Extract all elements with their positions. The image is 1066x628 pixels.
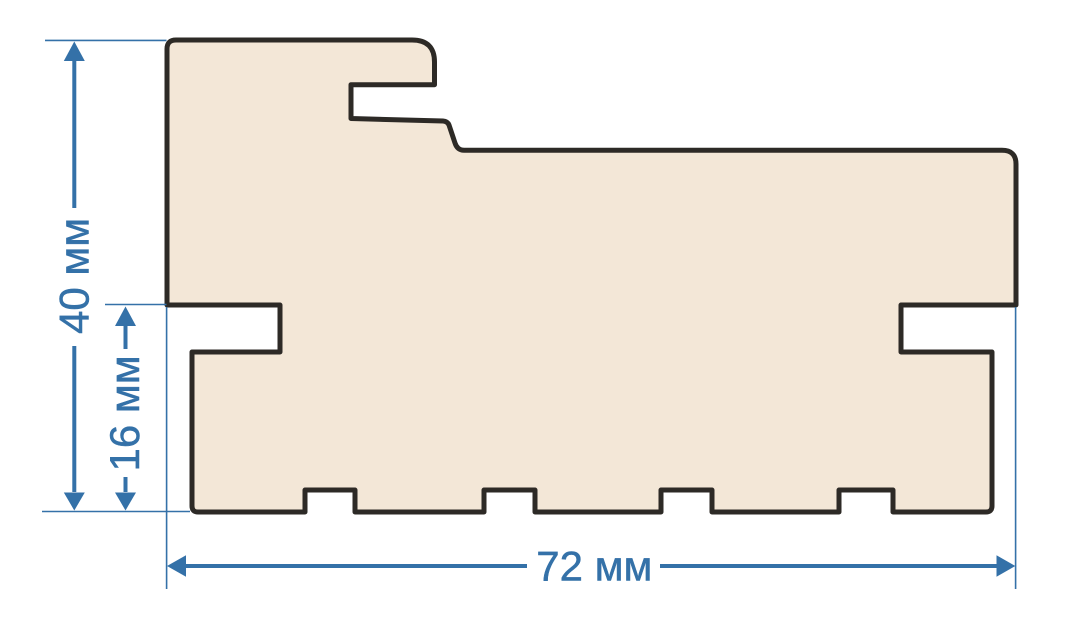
svg-text:40 мм: 40 мм [51, 218, 98, 334]
svg-text:72 мм: 72 мм [536, 542, 652, 589]
svg-text:16 мм: 16 мм [101, 355, 148, 471]
